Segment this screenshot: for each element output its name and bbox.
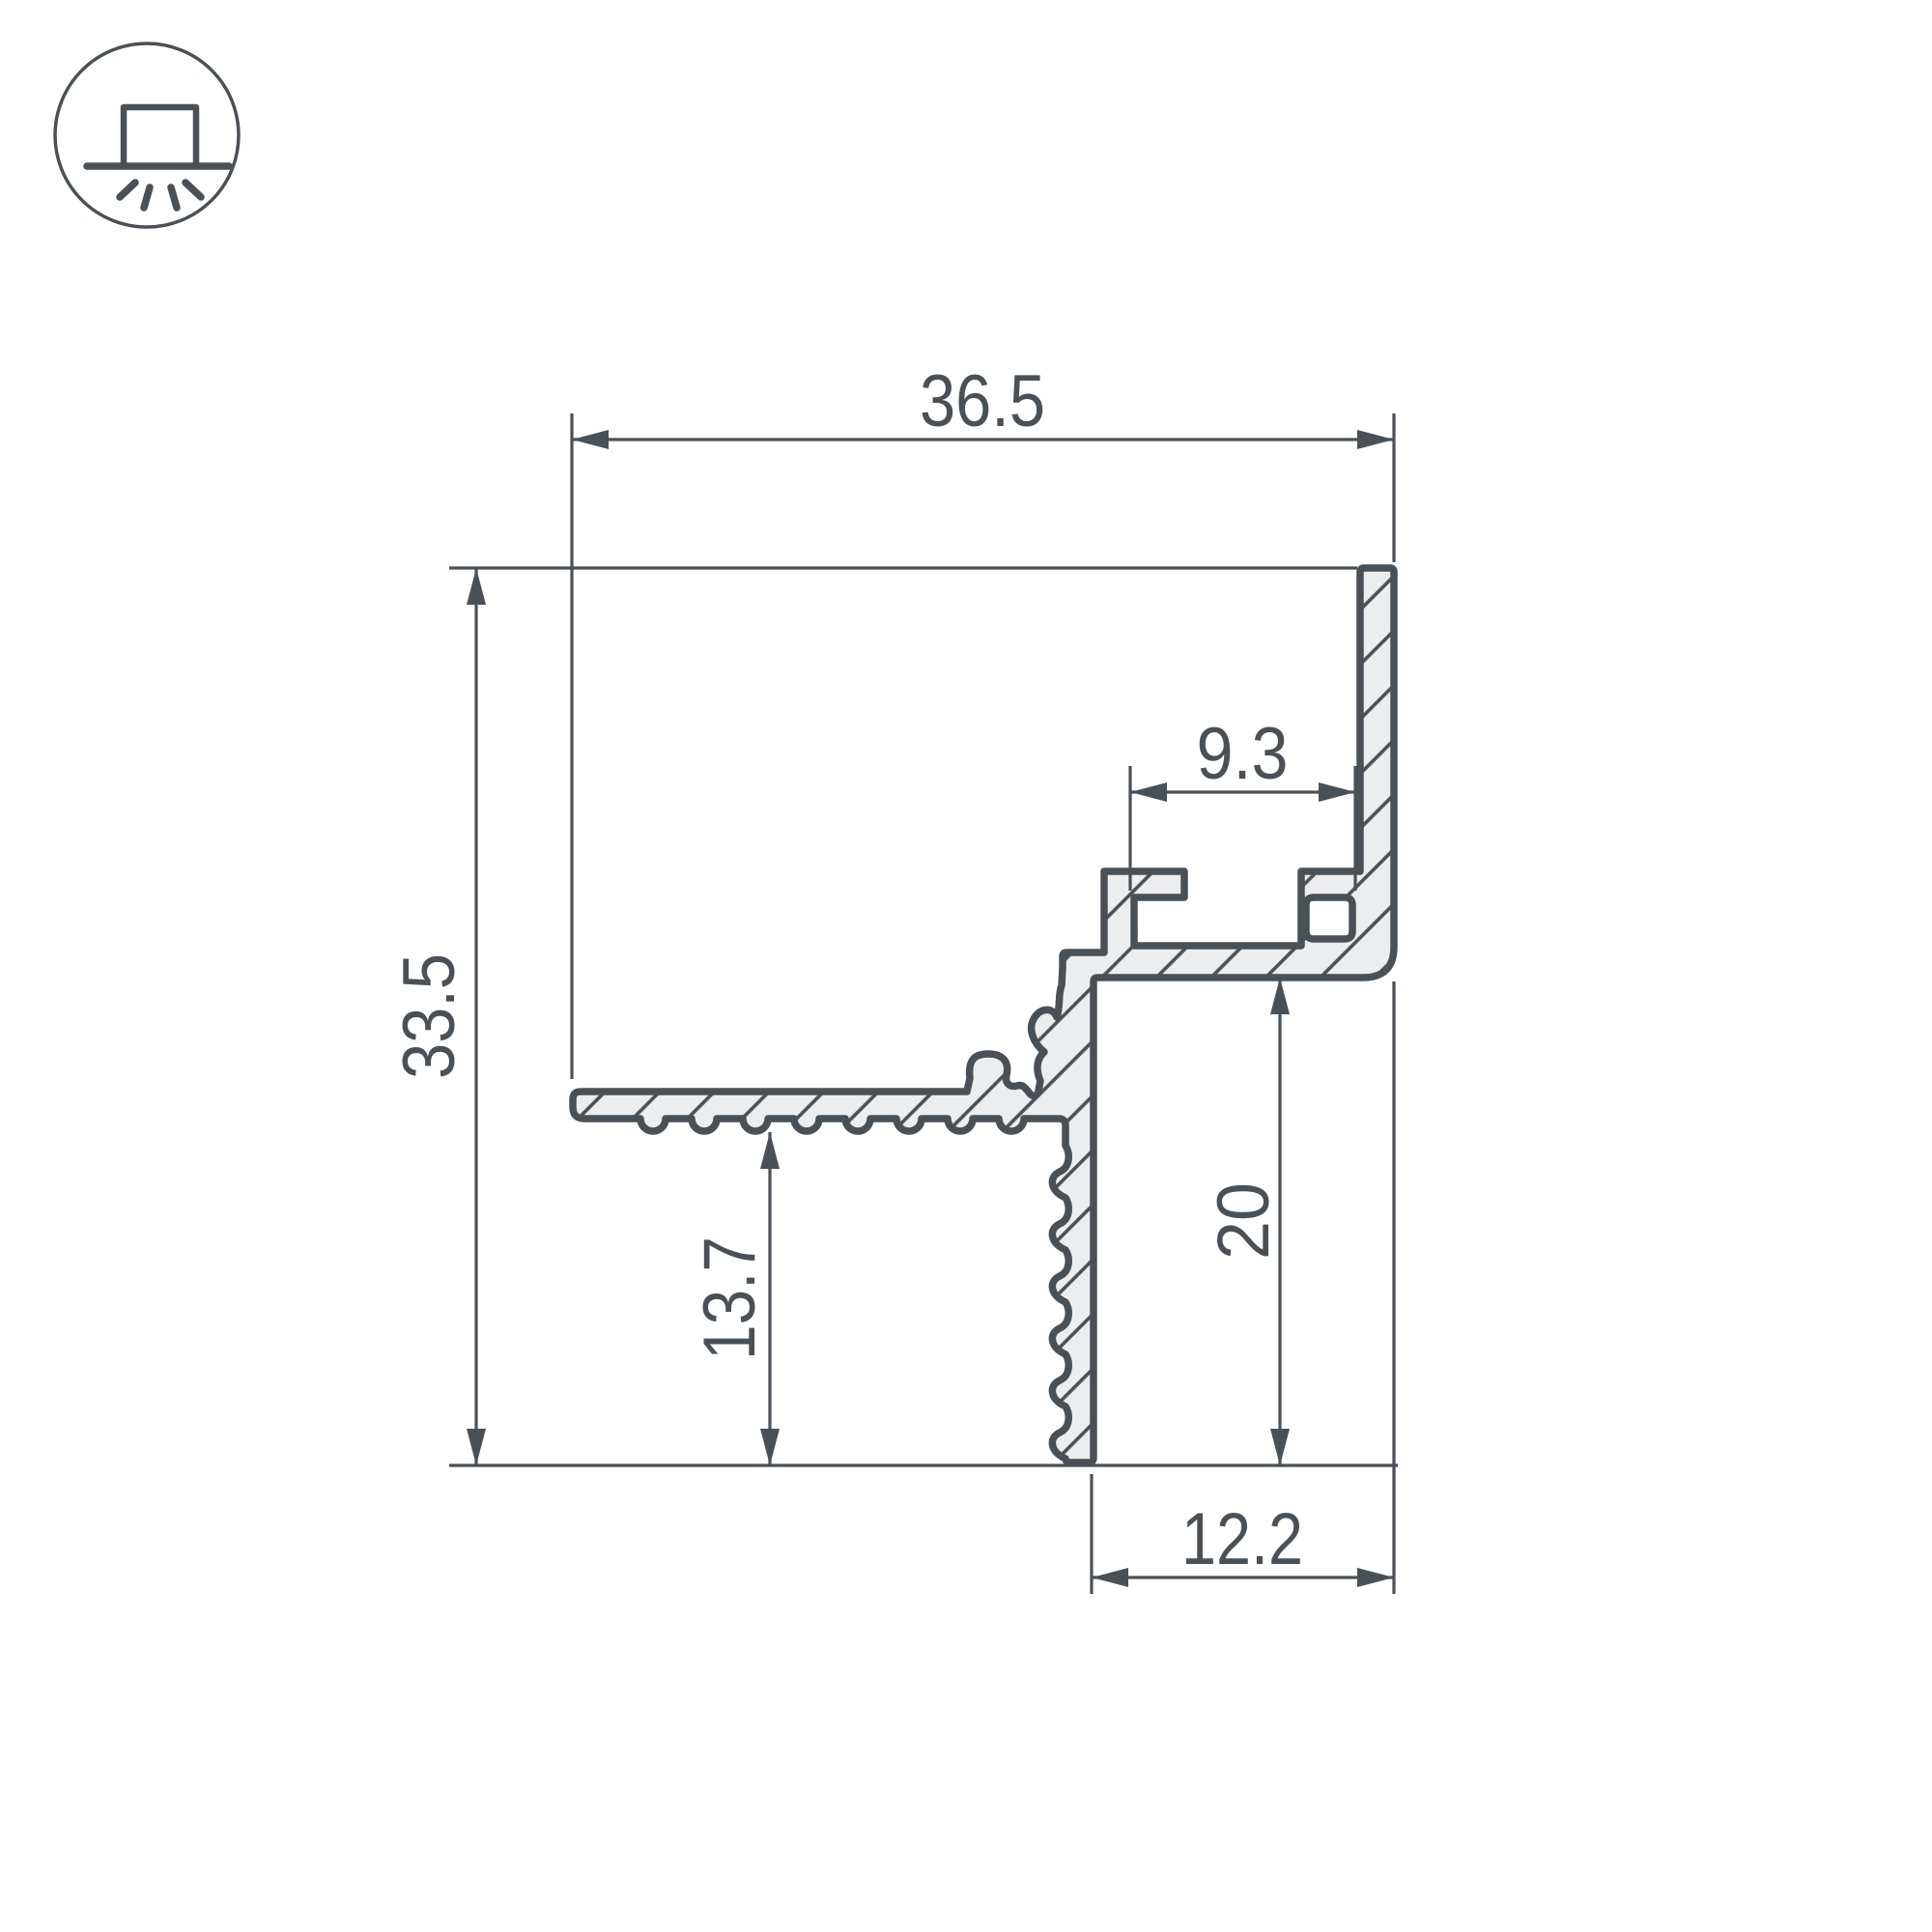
dim-label-slot-width: 9.3 — [1197, 713, 1289, 795]
arrowhead — [1270, 1429, 1290, 1465]
arrowhead — [1092, 1568, 1128, 1587]
surface-light-icon — [55, 43, 239, 227]
arrowhead — [1357, 430, 1394, 449]
icon-lamp-box — [124, 107, 196, 166]
dim-right-drop: 20 — [1203, 978, 1290, 1465]
technical-drawing: 36.5 33.5 9.3 13.7 — [0, 0, 1932, 1932]
arrowhead — [467, 1429, 486, 1465]
arrowhead — [760, 1429, 780, 1465]
drawing-canvas: 36.5 33.5 9.3 13.7 — [0, 0, 1932, 1932]
arrowhead — [1270, 978, 1290, 1014]
dim-left-drop: 13.7 — [689, 1132, 780, 1465]
arrowhead — [1357, 1568, 1394, 1587]
icon-light-rays — [120, 183, 201, 208]
dim-label-bottom-width: 12.2 — [1181, 1498, 1303, 1580]
dim-label-right-drop: 20 — [1203, 1182, 1285, 1260]
dim-bottom-width: 12.2 — [1092, 981, 1394, 1594]
arrowhead — [760, 1132, 780, 1169]
arrowhead — [572, 430, 609, 449]
arrowhead — [1319, 782, 1355, 802]
dim-label-overall-width: 36.5 — [920, 360, 1045, 442]
dim-slot-width: 9.3 — [1130, 713, 1355, 891]
dim-label-overall-height: 33.5 — [388, 953, 470, 1079]
dim-label-left-drop: 13.7 — [689, 1236, 771, 1360]
dim-overall-height: 33.5 — [388, 568, 1398, 1465]
arrowhead — [467, 568, 486, 605]
arrowhead — [1130, 782, 1167, 802]
